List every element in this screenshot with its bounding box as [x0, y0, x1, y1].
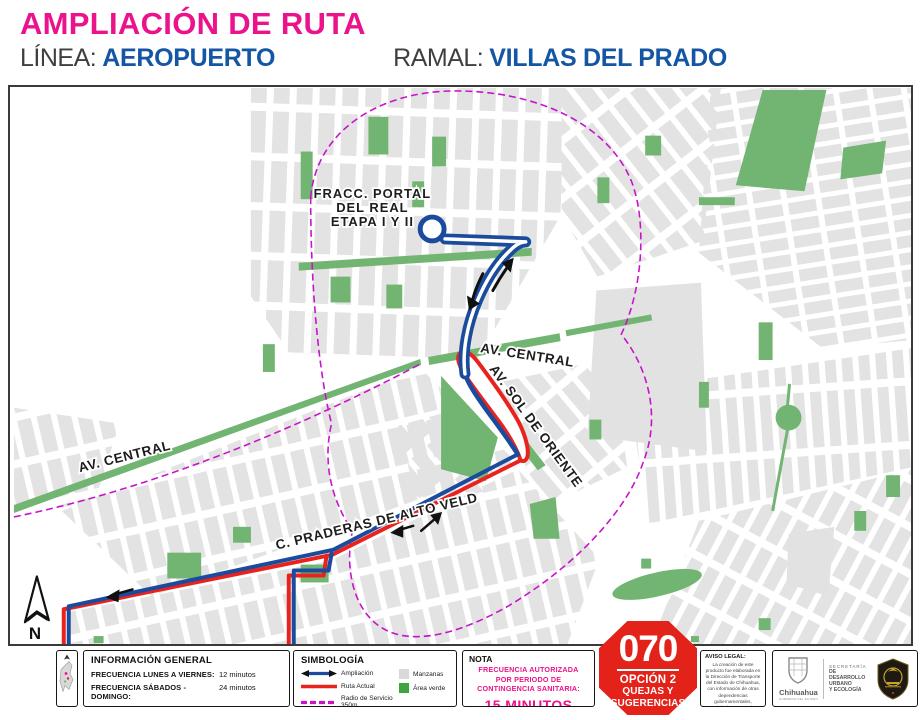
legend-panel: SIMBOLOGÍA Ampliación Ruta Actual — [293, 650, 457, 707]
complaints-line2: SUGERENCIAS — [599, 698, 697, 710]
map-svg: N FRACC. PORTAL DEL REAL ETAPA I Y II AV… — [10, 87, 911, 644]
nota-line2: POR PERIODO DE — [469, 675, 588, 685]
route-terminal-loop — [420, 217, 444, 241]
legend-label-area-verde: Área verde — [413, 685, 445, 692]
route-subtitle: LÍNEA: AEROPUERTO RAMAL: VILLAS DEL PRAD… — [20, 44, 727, 73]
legend-label-ampliacion: Ampliación — [341, 670, 373, 677]
north-arrow-icon: N — [25, 576, 49, 643]
route-map-poster: AMPLIACIÓN DE RUTA LÍNEA: AEROPUERTO RAM… — [0, 0, 922, 720]
complaints-option: OPCIÓN 2 — [599, 674, 697, 686]
legend-item-area-verde: Área verde — [399, 683, 445, 693]
state-government-logo: Chihuahua GOBIERNO DEL ESTADO — [779, 656, 818, 701]
frequency-weekday-row: FRECUENCIA LUNES A VIERNES: 12 minutos — [91, 670, 282, 679]
linea-label: LÍNEA: — [20, 44, 96, 73]
secretaria-logo-text: SECRETARÍA DE DESARROLLO URBANO Y ECOLOG… — [829, 664, 870, 693]
map-canvas: N FRACC. PORTAL DEL REAL ETAPA I Y II AV… — [8, 85, 913, 646]
nota-title: NOTA — [469, 654, 588, 664]
north-label: N — [29, 624, 41, 643]
complaints-line1: QUEJAS Y — [599, 686, 697, 698]
frequency-weekend-value: 24 minutos — [219, 683, 256, 701]
frequency-weekday-label: FRECUENCIA LUNES A VIERNES: — [91, 670, 219, 679]
complaints-divider — [617, 669, 679, 671]
fracc-label-line1: FRACC. PORTAL — [314, 186, 432, 201]
fracc-label-line3: ETAPA I Y II — [331, 214, 414, 229]
legend-item-ruta-actual: Ruta Actual — [301, 682, 399, 691]
state-map-icon — [56, 650, 78, 707]
transport-badge-icon — [875, 658, 911, 700]
complaints-badge: 070 OPCIÓN 2 QUEJAS Y SUGERENCIAS — [599, 621, 697, 715]
complaints-number: 070 — [599, 630, 697, 667]
ruta-actual-line-swatch — [301, 682, 337, 691]
radio-servicio-line-swatch — [301, 698, 337, 707]
logo-divider — [823, 659, 824, 699]
state-subtitle: GOBIERNO DEL ESTADO — [779, 697, 818, 701]
nota-value: 15 MINUTOS — [469, 697, 588, 707]
linea-value: AEROPUERTO — [102, 44, 275, 73]
legal-notice-title: AVISO LEGAL: — [705, 654, 761, 660]
legend-title: SIMBOLOGÍA — [301, 655, 449, 666]
fracc-label-line2: DEL REAL — [336, 200, 408, 215]
nota-panel: NOTA FRECUENCIA AUTORIZADA POR PERIODO D… — [462, 650, 595, 707]
logos-panel: Chihuahua GOBIERNO DEL ESTADO SECRETARÍA… — [772, 650, 918, 707]
info-general-title: INFORMACIÓN GENERAL — [91, 655, 282, 666]
chihuahua-shield-icon — [785, 656, 811, 684]
nota-line3: CONTINGENCIA SANITARIA: — [469, 684, 588, 694]
state-name: Chihuahua — [779, 689, 818, 697]
page-title: AMPLIACIÓN DE RUTA — [20, 6, 366, 42]
frequency-weekend-row: FRECUENCIA SÁBADOS - DOMINGO: 24 minutos — [91, 683, 282, 701]
legend-item-manzanas: Manzanas — [399, 669, 445, 679]
manzanas-swatch — [399, 669, 409, 679]
legend-label-ruta-actual: Ruta Actual — [341, 683, 375, 690]
ramal-label: RAMAL: — [393, 44, 483, 73]
ampliacion-line-swatch — [301, 669, 337, 678]
legal-notice-body: La creación de este producto fue elabora… — [705, 662, 761, 707]
legend-item-radio: Radio de Servicio 350m — [301, 695, 399, 707]
frequency-weekend-label: FRECUENCIA SÁBADOS - DOMINGO: — [91, 683, 219, 701]
frequency-weekday-value: 12 minutos — [219, 670, 256, 679]
legend-item-ampliacion: Ampliación — [301, 669, 399, 678]
ramal-value: VILLAS DEL PRADO — [489, 44, 727, 73]
secretaria-line3: Y ECOLOGÍA — [829, 687, 870, 693]
nota-line1: FRECUENCIA AUTORIZADA — [469, 665, 588, 675]
secretaria-line2: DE DESARROLLO URBANO — [829, 669, 870, 687]
legal-notice-panel: AVISO LEGAL: La creación de este product… — [700, 650, 766, 707]
area-verde-swatch — [399, 683, 409, 693]
info-general-panel: INFORMACIÓN GENERAL FRECUENCIA LUNES A V… — [83, 650, 290, 707]
legend-label-radio: Radio de Servicio 350m — [341, 695, 399, 707]
legend-label-manzanas: Manzanas — [413, 671, 443, 678]
